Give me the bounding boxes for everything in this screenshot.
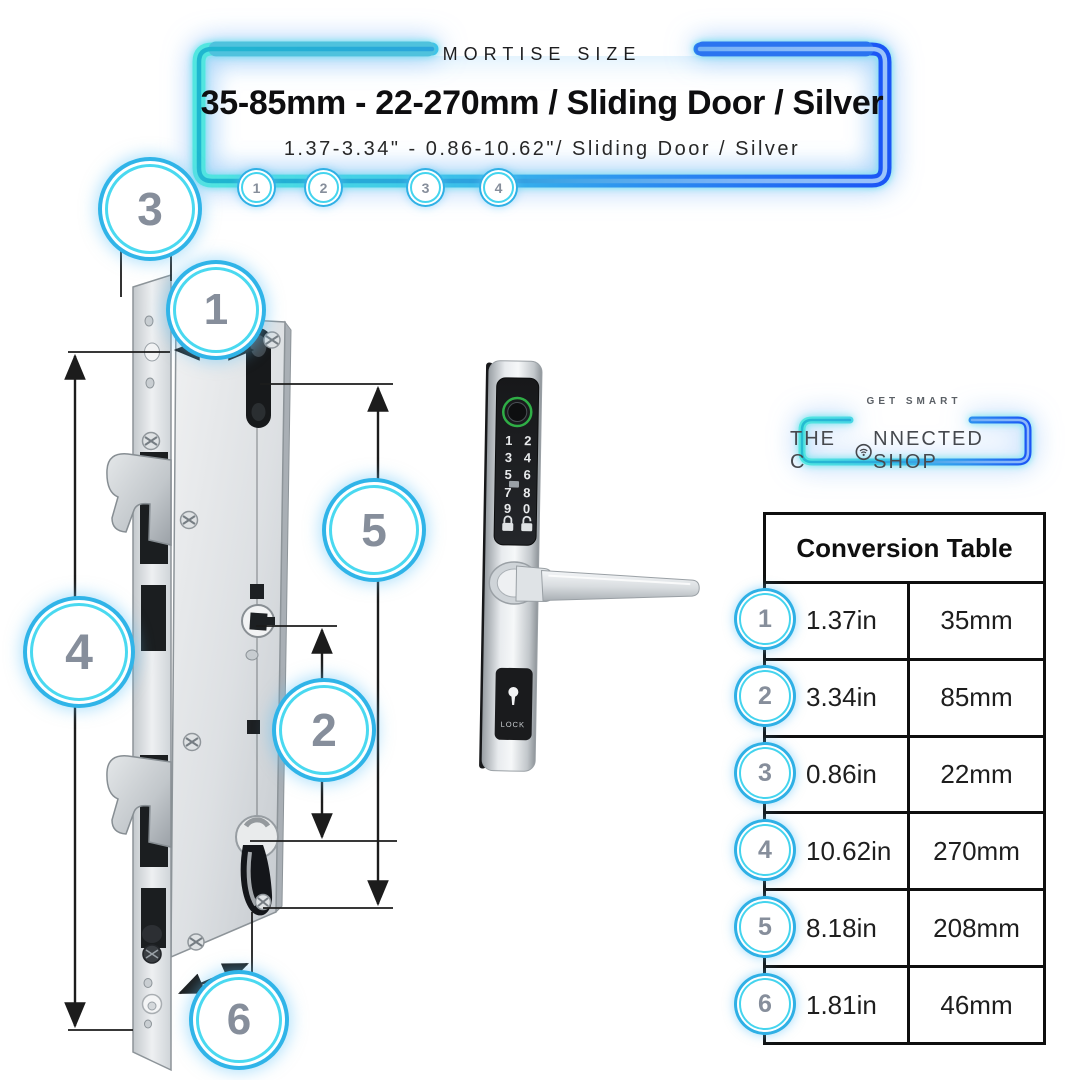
handle-lever bbox=[516, 566, 700, 604]
table-row-5: 8.18in 208mm bbox=[766, 891, 1043, 968]
keypad-digit-0: 0 bbox=[523, 501, 530, 516]
table-row-2: 3.34in 85mm bbox=[766, 661, 1043, 738]
brand-tagline: GET SMART bbox=[800, 396, 1028, 407]
table-row-badge-3: 3 bbox=[739, 747, 791, 799]
table-row-badge-6: 6 bbox=[739, 978, 791, 1030]
mm-cell: 46mm bbox=[910, 968, 1043, 1042]
wifi-o-icon bbox=[855, 442, 872, 461]
table-row-3: 0.86in 22mm bbox=[766, 738, 1043, 815]
mortise-size-infographic: MORTISE SIZE 35-85mm - 22-270mm / Slidin… bbox=[0, 0, 1080, 1080]
mm-cell: 85mm bbox=[910, 661, 1043, 735]
mm-cell: 22mm bbox=[910, 738, 1043, 812]
row-1-number: 1 bbox=[758, 605, 772, 634]
table-row-1: 1.37in 35mm bbox=[766, 584, 1043, 661]
table-row-badge-4: 4 bbox=[739, 824, 791, 876]
table-row-badge-1: 1 bbox=[739, 593, 791, 645]
row-3-number: 3 bbox=[758, 759, 772, 788]
keypad-digit-9: 9 bbox=[504, 501, 511, 516]
brand-name-part-1: THE C bbox=[790, 428, 854, 474]
conversion-table: Conversion Table 1.37in 35mm 3.34in 85mm… bbox=[763, 512, 1046, 1045]
row-5-number: 5 bbox=[758, 913, 772, 942]
mm-cell: 35mm bbox=[910, 584, 1043, 658]
row-6-number: 6 bbox=[758, 990, 772, 1019]
brand-name-part-2: NNECTED SHOP bbox=[873, 428, 1040, 474]
lock-text-label: LOCK bbox=[501, 720, 526, 729]
table-row-6: 1.81in 46mm bbox=[766, 968, 1043, 1042]
brand-logo-frame bbox=[0, 0, 1080, 500]
mm-cell: 208mm bbox=[910, 891, 1043, 965]
row-2-number: 2 bbox=[758, 682, 772, 711]
brand-name: THE C NNECTED SHOP bbox=[790, 428, 1040, 474]
table-row-badge-5: 5 bbox=[739, 901, 791, 953]
table-row-4: 10.62in 270mm bbox=[766, 814, 1043, 891]
row-4-number: 4 bbox=[758, 836, 772, 865]
table-row-badge-2: 2 bbox=[739, 670, 791, 722]
mm-cell: 270mm bbox=[910, 814, 1043, 888]
conversion-table-title: Conversion Table bbox=[766, 515, 1043, 584]
